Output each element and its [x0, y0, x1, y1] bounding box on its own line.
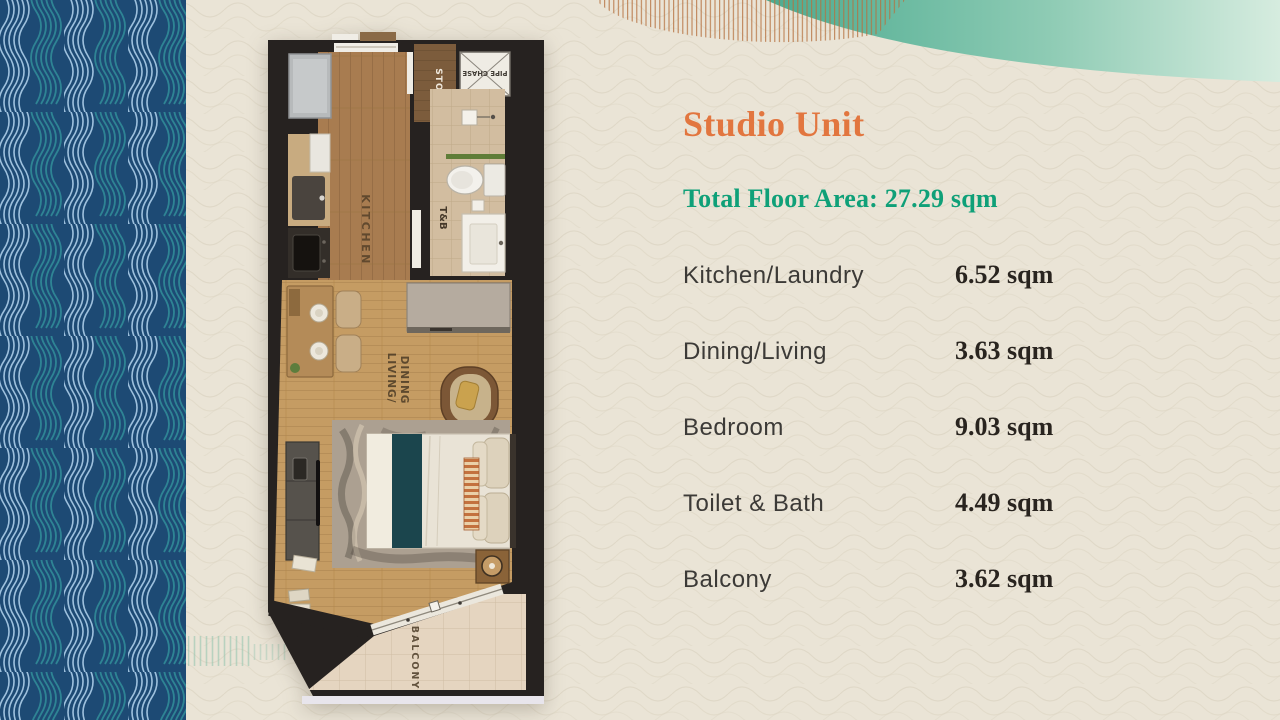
dining-chair — [336, 335, 361, 372]
area-row-kitchen-laundry: Kitchen/Laundry 6.52 sqm — [683, 262, 1113, 296]
dining-table — [287, 286, 333, 377]
area-value: 6.52 sqm — [955, 260, 1053, 290]
area-label: Balcony — [683, 566, 772, 593]
area-row-balcony: Balcony 3.62 sqm — [683, 566, 1113, 600]
plan-base-strip — [302, 696, 544, 704]
kitchen-label: KITCHEN — [359, 194, 372, 266]
dining-chair — [336, 291, 361, 328]
vanity-sink — [462, 214, 505, 272]
area-label: Dining/Living — [683, 338, 827, 365]
bed-pillow — [484, 493, 509, 543]
bath-shelf — [446, 154, 505, 159]
tv — [316, 460, 320, 526]
area-value: 4.49 sqm — [955, 488, 1053, 518]
cooktop — [288, 228, 330, 278]
area-value: 3.62 sqm — [955, 564, 1053, 594]
storage-door — [407, 52, 413, 94]
living-dining-label: DINING — [398, 356, 410, 405]
tv-console — [286, 442, 320, 560]
area-row-dining-living: Dining/Living 3.63 sqm — [683, 338, 1113, 372]
accent-pillow — [464, 458, 479, 530]
total-floor-area: Total Floor Area: 27.29 sqm — [683, 184, 998, 214]
area-label: Bedroom — [683, 414, 784, 441]
bed — [367, 434, 516, 548]
top-wave-decoration — [0, 0, 1280, 140]
washer — [289, 54, 331, 118]
orange-hatch-band — [596, 0, 905, 42]
bathroom-door — [412, 210, 421, 268]
entry-door-swing — [332, 34, 358, 40]
bed-pillow — [484, 438, 509, 488]
nightstand — [476, 550, 509, 583]
balcony-label: BALCONY — [409, 626, 420, 691]
area-row-bedroom: Bedroom 9.03 sqm — [683, 414, 1113, 448]
area-label: Kitchen/Laundry — [683, 262, 864, 289]
kitchen-counter — [288, 134, 330, 226]
left-pattern-band — [0, 0, 186, 720]
living-dining-label: LIVING/ — [385, 353, 397, 404]
console-cabinet — [407, 283, 510, 333]
area-value: 3.63 sqm — [955, 336, 1053, 366]
area-value: 9.03 sqm — [955, 412, 1053, 442]
bath-fixture — [472, 200, 484, 211]
entry-door-leaf — [360, 32, 396, 41]
toilet — [447, 164, 505, 196]
area-label: Toilet & Bath — [683, 490, 824, 517]
floorplan-svg: KITCHEN STO. PIPE CHASE T&B — [262, 30, 547, 705]
page-title: Studio Unit — [683, 103, 864, 145]
pipe-chase-label: PIPE CHASE — [462, 69, 507, 77]
toilet-bath-label: T&B — [437, 206, 448, 229]
area-row-toilet-bath: Toilet & Bath 4.49 sqm — [683, 490, 1113, 524]
